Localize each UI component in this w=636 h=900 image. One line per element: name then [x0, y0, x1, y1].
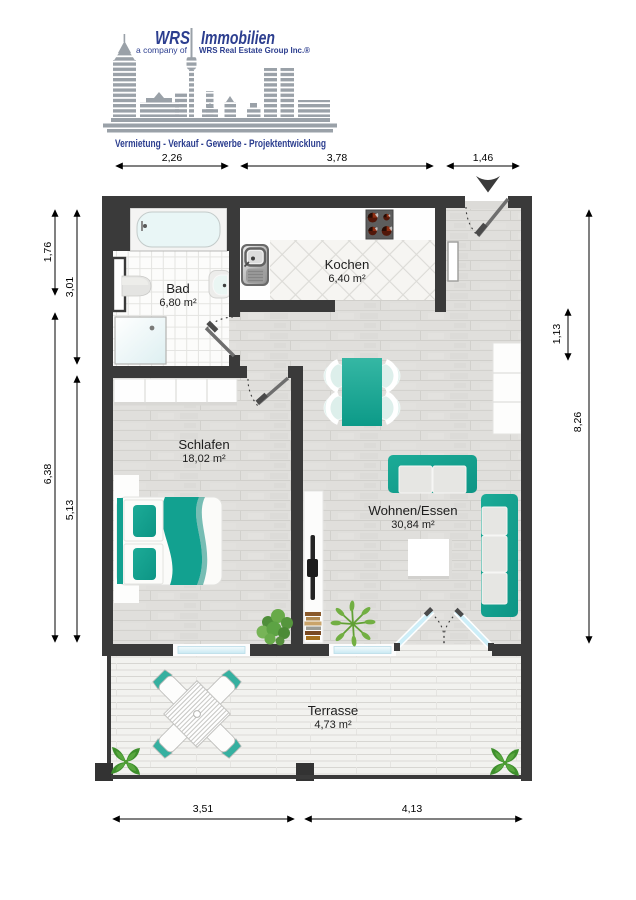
svg-text:18,02 m²: 18,02 m²	[182, 453, 226, 465]
svg-text:4,73 m²: 4,73 m²	[314, 719, 352, 731]
svg-text:6,40 m²: 6,40 m²	[328, 273, 366, 285]
svg-text:6,38: 6,38	[42, 464, 54, 485]
svg-text:Schlafen: Schlafen	[178, 437, 229, 452]
svg-text:3,51: 3,51	[193, 803, 214, 815]
svg-text:4,13: 4,13	[402, 803, 423, 815]
svg-text:6,80 m²: 6,80 m²	[159, 297, 197, 309]
svg-text:1,13: 1,13	[551, 324, 563, 345]
svg-text:8,26: 8,26	[572, 412, 584, 433]
svg-text:2,26: 2,26	[162, 152, 183, 164]
svg-text:Wohnen/Essen: Wohnen/Essen	[368, 503, 457, 518]
svg-text:3,78: 3,78	[327, 152, 348, 164]
svg-text:1,46: 1,46	[473, 152, 494, 164]
svg-text:5,13: 5,13	[64, 500, 76, 521]
svg-text:30,84 m²: 30,84 m²	[391, 519, 435, 531]
svg-text:a company of: a company of	[136, 45, 188, 55]
svg-text:Terrasse: Terrasse	[308, 703, 359, 718]
svg-text:1,76: 1,76	[42, 242, 54, 263]
svg-text:Bad: Bad	[166, 281, 189, 296]
svg-text:Vermietung - Verkauf - Gewerbe: Vermietung - Verkauf - Gewerbe - Projekt…	[115, 138, 326, 150]
svg-text:Kochen: Kochen	[325, 257, 370, 272]
svg-text:WRS Real Estate Group Inc.®: WRS Real Estate Group Inc.®	[199, 45, 311, 55]
svg-text:3,01: 3,01	[64, 277, 76, 298]
